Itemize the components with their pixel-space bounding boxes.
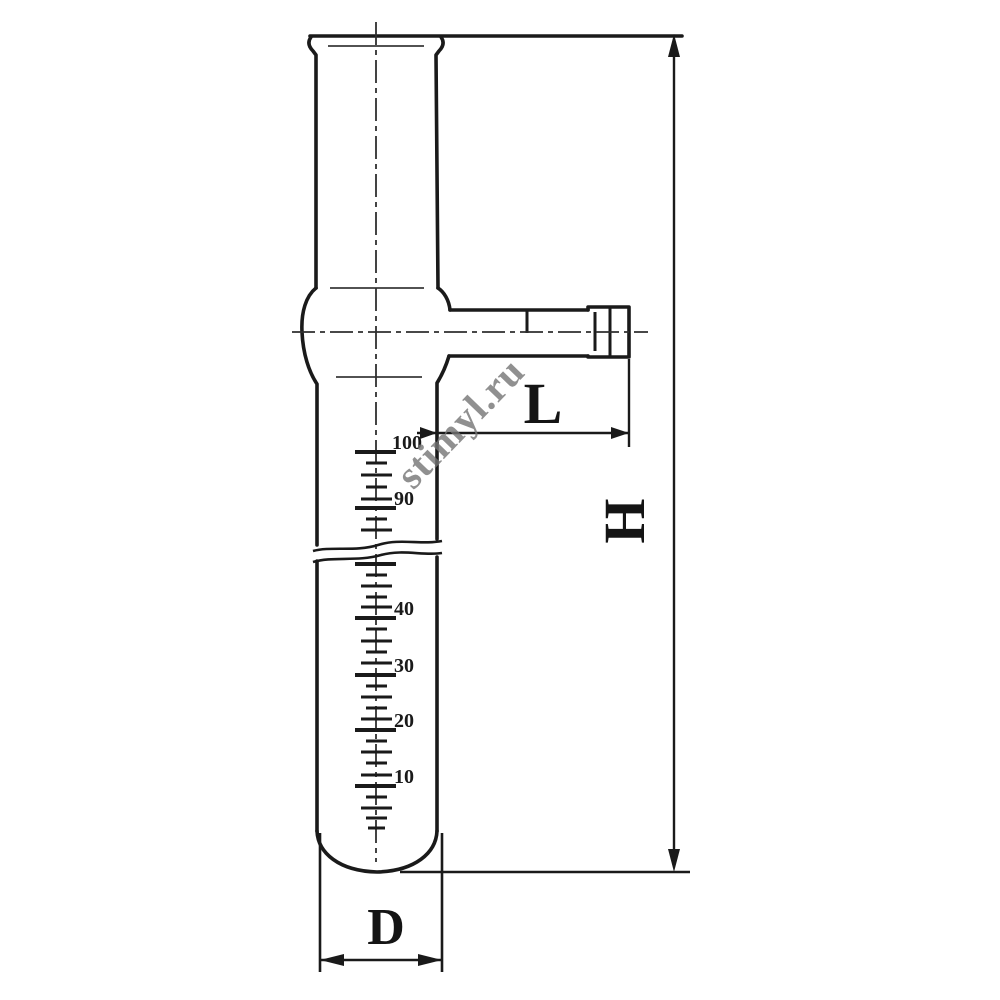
technical-drawing-canvas: 100 90 40 30 20 10 H L D stimyl.ru [0, 0, 1000, 1000]
arrowhead-left [320, 954, 344, 966]
arrowhead-right [418, 954, 442, 966]
neck-right-wall [436, 37, 443, 288]
scale-label-30: 30 [394, 655, 414, 677]
dimension-diameter: D [320, 833, 442, 972]
scale-label-20: 20 [394, 710, 414, 732]
scale-label-40: 40 [394, 598, 414, 620]
scale-label-10: 10 [394, 766, 414, 788]
diameter-label: D [367, 899, 405, 956]
break-line-upper [313, 541, 442, 551]
bulb-right-upper-edge [438, 288, 450, 310]
round-bottom [317, 831, 437, 872]
arrowhead-right [611, 427, 629, 439]
watermark-text: stimyl.ru [387, 348, 533, 497]
glassware-diagram: 100 90 40 30 20 10 H L D stimyl.ru [0, 0, 1000, 1000]
break-lines [313, 541, 442, 562]
height-label: H [592, 498, 657, 543]
neck-left-wall [309, 37, 316, 288]
break-line-lower [313, 552, 442, 562]
bulb-left-edge [302, 288, 317, 545]
scale-label-90: 90 [394, 488, 414, 510]
graduation-scale: 100 90 40 30 20 10 [355, 432, 422, 828]
arrowhead-down [668, 849, 680, 872]
